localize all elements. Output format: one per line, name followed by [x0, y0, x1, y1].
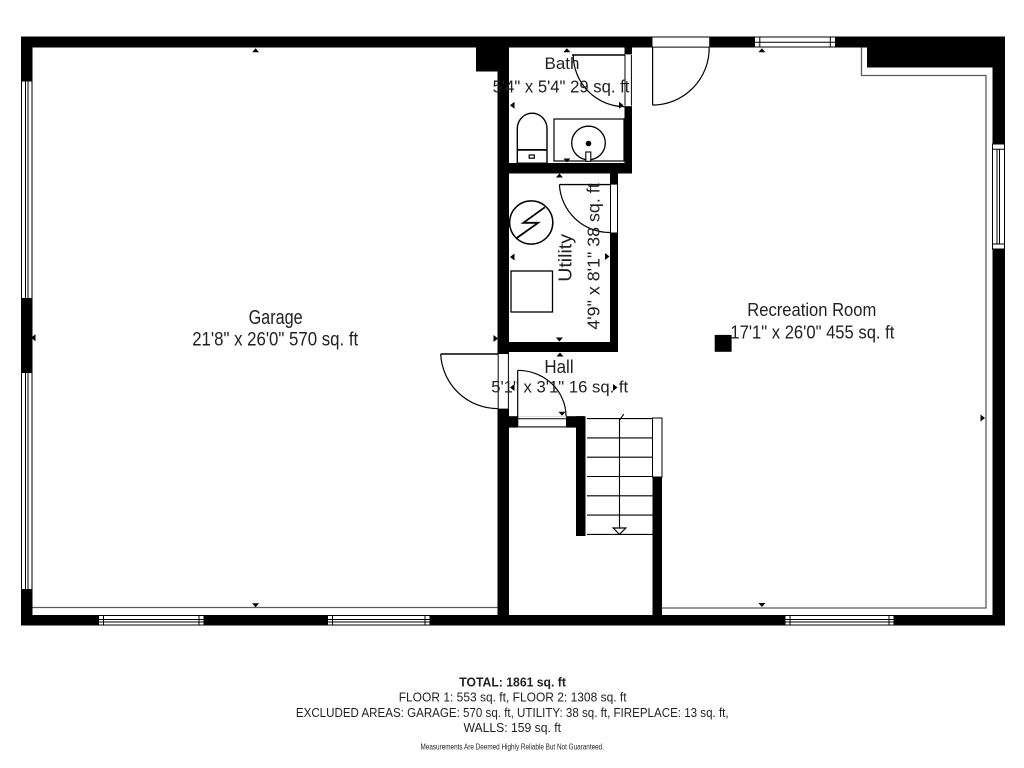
svg-text:Hall: Hall — [544, 357, 573, 377]
svg-text:Bath: Bath — [545, 55, 580, 73]
svg-text:21'8" x 26'0" 570 sq. ft: 21'8" x 26'0" 570 sq. ft — [192, 329, 359, 350]
svg-text:EXCLUDED AREAS: GARAGE: 570 sq: EXCLUDED AREAS: GARAGE: 570 sq. ft, UTIL… — [296, 705, 729, 720]
svg-text:Measurements Are Deemed Highly: Measurements Are Deemed Highly Reliable … — [421, 743, 605, 752]
svg-text:WALLS: 159 sq. ft: WALLS: 159 sq. ft — [464, 720, 562, 735]
svg-text:TOTAL: 1861 sq. ft: TOTAL: 1861 sq. ft — [459, 674, 566, 689]
svg-text:Recreation Room: Recreation Room — [747, 299, 876, 320]
svg-text:Utility: Utility — [556, 234, 576, 282]
svg-text:FLOOR 1: 553 sq. ft, FLOOR 2:: FLOOR 1: 553 sq. ft, FLOOR 2: 1308 sq. f… — [399, 690, 627, 705]
svg-text:4'9" x 8'1" 38 sq. ft: 4'9" x 8'1" 38 sq. ft — [584, 183, 604, 329]
svg-text:17'1" x 26'0" 455 sq. ft: 17'1" x 26'0" 455 sq. ft — [730, 321, 894, 342]
svg-text:Garage: Garage — [249, 306, 303, 329]
svg-text:5'1" x 3'1" 16 sq. ft: 5'1" x 3'1" 16 sq. ft — [491, 378, 628, 397]
svg-text:5'4" x 5'4" 29 sq. ft: 5'4" x 5'4" 29 sq. ft — [493, 77, 630, 97]
